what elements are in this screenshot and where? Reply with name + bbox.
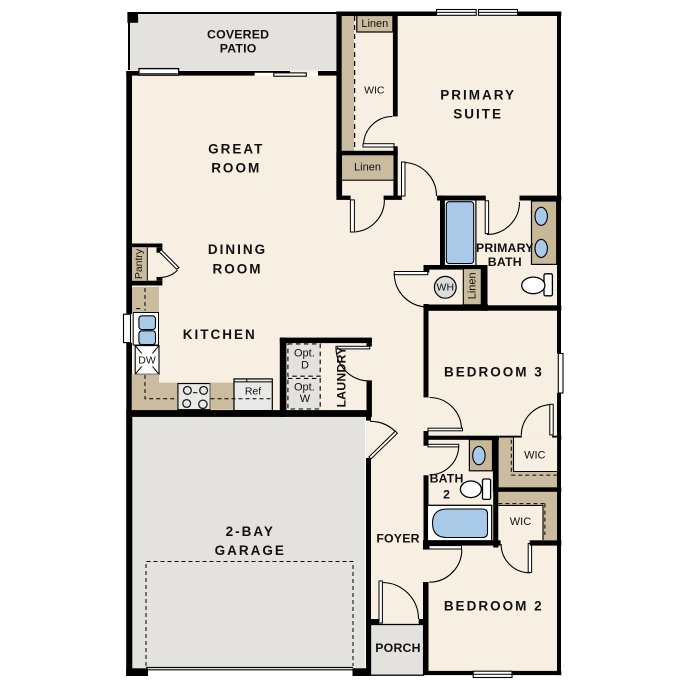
- svg-text:DINING: DINING: [208, 242, 267, 257]
- svg-text:W: W: [300, 393, 311, 405]
- svg-text:PORCH: PORCH: [375, 641, 420, 655]
- svg-text:KITCHEN: KITCHEN: [183, 327, 257, 342]
- svg-text:Linen: Linen: [354, 162, 381, 174]
- svg-text:2-BAY: 2-BAY: [226, 524, 275, 539]
- svg-text:Pantry: Pantry: [133, 248, 145, 279]
- svg-text:WIC: WIC: [510, 516, 531, 528]
- svg-text:GARAGE: GARAGE: [215, 543, 286, 558]
- svg-text:SUITE: SUITE: [453, 107, 503, 122]
- svg-text:ROOM: ROOM: [213, 262, 263, 277]
- svg-text:Linen: Linen: [466, 272, 478, 299]
- svg-text:BEDROOM 3: BEDROOM 3: [444, 365, 544, 380]
- svg-text:BATH: BATH: [488, 255, 522, 269]
- svg-text:WH: WH: [437, 282, 455, 294]
- svg-text:Linen: Linen: [361, 18, 388, 30]
- svg-text:2: 2: [443, 487, 450, 501]
- svg-text:LAUNDRY: LAUNDRY: [335, 346, 349, 407]
- svg-text:Opt.: Opt.: [294, 348, 315, 360]
- svg-text:WIC: WIC: [364, 84, 385, 96]
- svg-text:COVERED: COVERED: [207, 28, 269, 42]
- svg-text:PRIMARY: PRIMARY: [476, 241, 534, 255]
- svg-text:PATIO: PATIO: [220, 41, 257, 55]
- svg-text:D: D: [301, 359, 309, 371]
- svg-text:Opt.: Opt.: [294, 382, 315, 394]
- svg-text:BEDROOM 2: BEDROOM 2: [444, 599, 544, 614]
- svg-text:GREAT: GREAT: [208, 142, 264, 157]
- svg-text:BATH: BATH: [430, 472, 464, 486]
- svg-text:ROOM: ROOM: [211, 161, 261, 176]
- svg-text:DW: DW: [138, 354, 156, 366]
- svg-text:Ref: Ref: [245, 386, 261, 398]
- svg-text:WIC: WIC: [524, 449, 545, 461]
- svg-text:FOYER: FOYER: [376, 531, 419, 545]
- svg-text:PRIMARY: PRIMARY: [440, 88, 516, 103]
